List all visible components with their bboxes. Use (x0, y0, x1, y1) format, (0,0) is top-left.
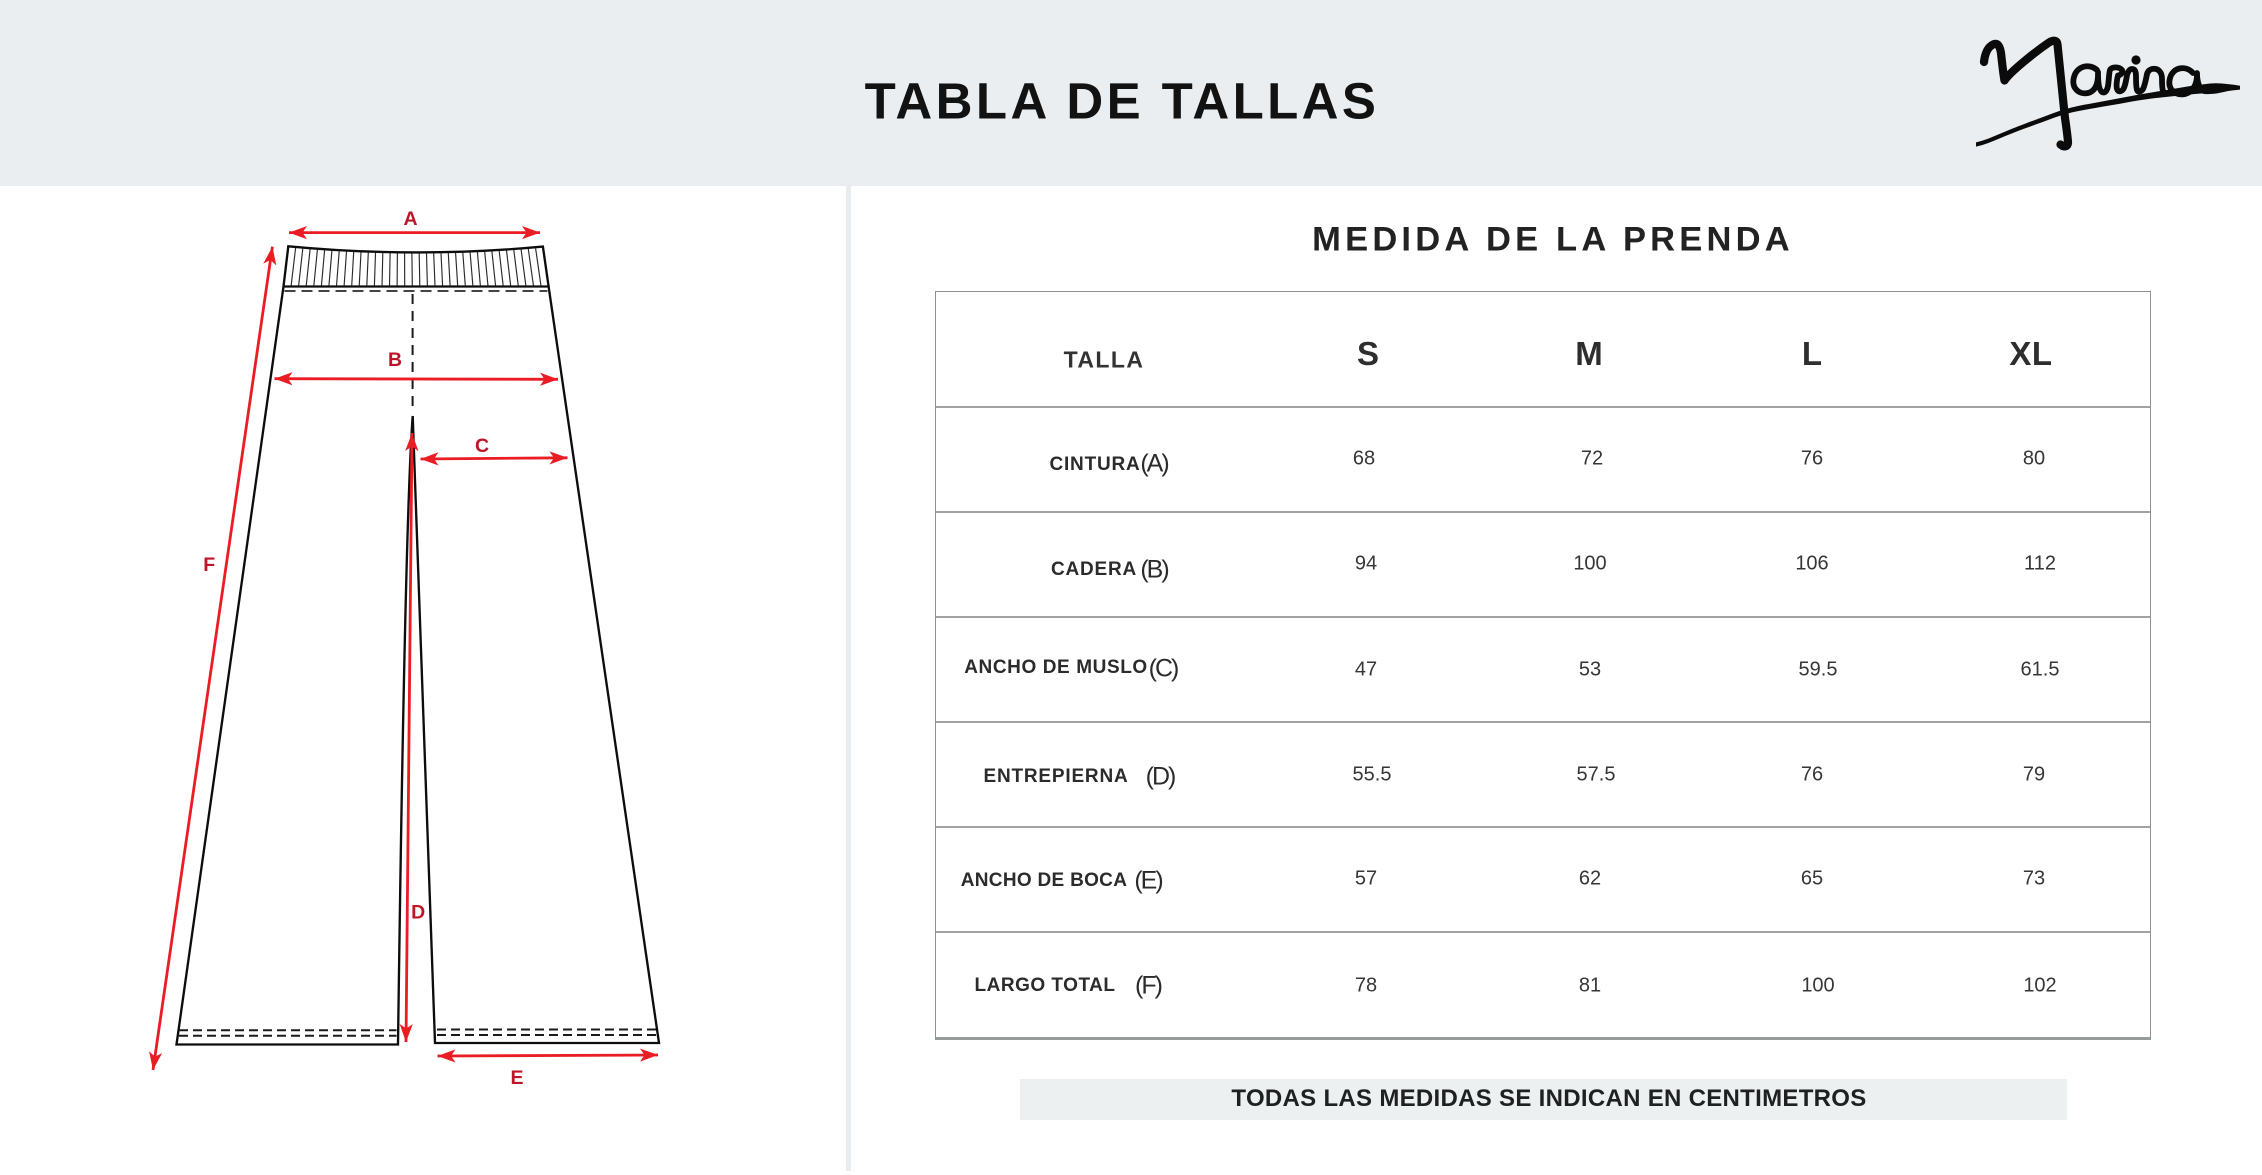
svg-text:D: D (411, 902, 425, 924)
svg-text:E: E (510, 1067, 523, 1089)
svg-text:C: C (475, 435, 489, 457)
svg-text:B: B (388, 349, 402, 371)
svg-text:F: F (203, 554, 215, 576)
svg-text:A: A (404, 208, 418, 230)
